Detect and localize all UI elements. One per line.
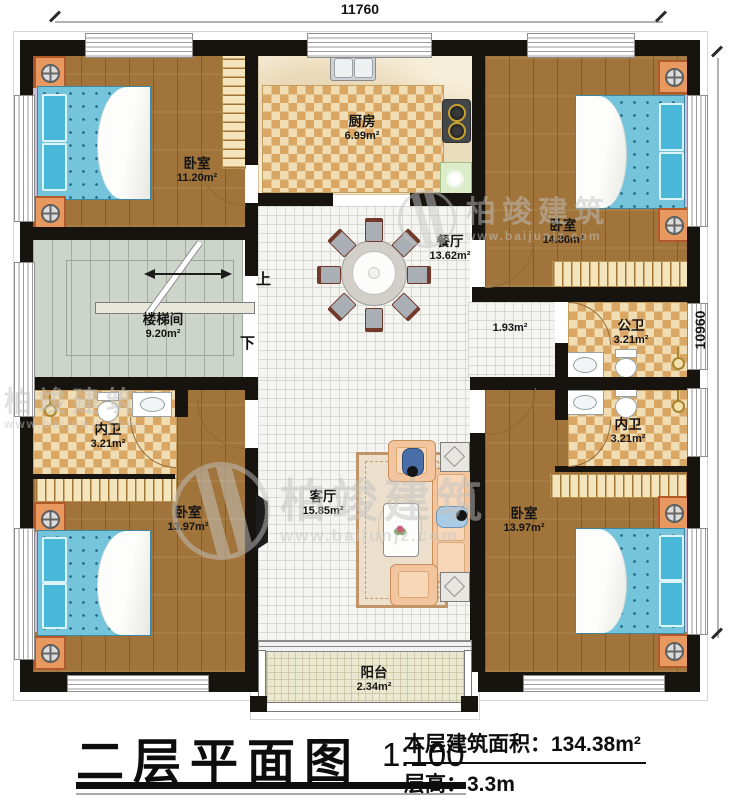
wall [20, 377, 258, 390]
wall [245, 390, 258, 400]
nightstand [658, 496, 690, 530]
floor-height-value: 3.3m [467, 773, 515, 796]
stair-up-label: 上 [256, 268, 271, 289]
shower-head-icon [44, 404, 57, 417]
wall [470, 433, 485, 672]
stair-direction-line [155, 273, 223, 275]
room-name: 楼梯间 [143, 312, 184, 328]
window [14, 95, 35, 222]
room-label-bedroom-br: 卧室 13.97m² [504, 506, 545, 535]
floor-area-label: 本层建筑面积： [404, 733, 551, 756]
stair-arrow-icon [221, 269, 232, 279]
bathroom-sink [566, 352, 604, 378]
toilet-bowl [615, 358, 637, 378]
toilet [94, 392, 120, 422]
room-name: 阳台 [357, 665, 392, 681]
wall [250, 696, 267, 712]
window [687, 528, 708, 635]
room-name: 内卫 [91, 422, 126, 438]
room-label-stairwell: 楼梯间 9.20m² [143, 312, 184, 341]
bed-sheet [576, 529, 627, 633]
pillow [659, 535, 684, 581]
sink-basin [140, 397, 165, 412]
bed [575, 528, 685, 634]
wall [245, 40, 258, 165]
room-area: 11.20m² [177, 172, 217, 185]
room-label-bath-right: 内卫 3.21m² [611, 417, 646, 446]
wall [410, 193, 472, 206]
coffee-table [383, 503, 419, 557]
room-area: 15.85m² [303, 505, 344, 518]
window [523, 675, 665, 692]
wall [472, 287, 700, 302]
dimension-line-top [55, 21, 663, 23]
room-area: 13.62m² [430, 250, 471, 263]
room-area: 9.20m² [143, 328, 184, 341]
stair-down-label: 下 [240, 332, 255, 353]
toilet [612, 349, 638, 377]
toilet [612, 388, 638, 417]
bed-sheet [576, 96, 627, 208]
pillow [659, 152, 684, 200]
window [527, 33, 635, 58]
side-table [440, 572, 470, 602]
room-area: 13.97m² [504, 522, 545, 535]
lamp-icon [665, 642, 684, 661]
nightstand [34, 636, 66, 670]
window [67, 675, 209, 692]
lamp-icon [41, 510, 60, 529]
floor-height-label: 层高： [404, 773, 467, 796]
wall [472, 40, 485, 205]
window [14, 528, 35, 660]
side-table [440, 442, 470, 472]
sink-basin [334, 58, 353, 78]
wall [258, 193, 333, 206]
room-label-balcony: 阳台 2.34m² [357, 665, 392, 694]
room-label-dining: 餐厅 13.62m² [430, 234, 471, 263]
pillow [659, 103, 684, 151]
side-table-decor [444, 576, 465, 597]
nightstand [34, 56, 66, 90]
lamp-icon [665, 504, 684, 523]
chair [365, 218, 383, 242]
wall [555, 343, 568, 377]
bathroom-sink [566, 390, 604, 415]
toilet-tank [97, 392, 119, 401]
wall [461, 696, 478, 712]
window [14, 262, 35, 417]
sofa-cushion [398, 571, 429, 598]
wardrobe [552, 261, 689, 287]
wall [472, 205, 485, 240]
sink-basin [354, 58, 373, 78]
room-name: 公卫 [614, 318, 649, 334]
window [687, 95, 708, 227]
person-head [456, 510, 467, 521]
room-label-bedroom-tr: 卧室 14.86m² [543, 218, 584, 247]
wall [20, 227, 258, 240]
burner-icon [448, 104, 466, 122]
bathroom-sink [132, 392, 172, 417]
room-label-bedroom-bl: 卧室 13.97m² [168, 505, 209, 534]
room-label-living: 客厅 15.85m² [303, 489, 344, 518]
dimension-right: 10960 [692, 295, 708, 365]
room-name: 卧室 [168, 505, 209, 521]
side-table-decor [444, 446, 465, 467]
floor-plan-page: 11760 10960 [0, 0, 750, 799]
person-head [407, 466, 418, 477]
burner-icon [448, 122, 466, 140]
balcony-door-track [258, 640, 472, 652]
pillow [659, 581, 684, 627]
room-area: 3.21m² [91, 438, 126, 451]
floor-area-value: 134.38m² [551, 733, 641, 756]
room-name: 客厅 [303, 489, 344, 505]
toilet-bowl [615, 397, 637, 418]
room-label-bedroom-tl: 卧室 11.20m² [177, 156, 217, 185]
floor-hallway [468, 302, 555, 377]
room-area: 3.21m² [611, 433, 646, 446]
room-area: 13.97m² [168, 521, 209, 534]
balcony-wall [258, 702, 472, 712]
sink-basin [573, 357, 597, 373]
kitchen-sink [330, 54, 376, 81]
window [307, 33, 432, 58]
bed [37, 530, 151, 636]
room-label-kitchen: 厨房 6.99m² [345, 114, 380, 143]
chair [365, 308, 383, 332]
room-label-bath-left: 内卫 3.21m² [91, 422, 126, 451]
floor-area-info: 本层建筑面积：134.38m² [404, 728, 641, 758]
tv [256, 494, 268, 550]
stove [442, 99, 471, 143]
room-label-hallway: 1.93m² [493, 322, 528, 335]
nightstand [658, 60, 690, 94]
room-name: 卧室 [543, 218, 584, 234]
lamp-icon [665, 68, 684, 87]
lamp-icon [41, 644, 60, 663]
room-name: 内卫 [611, 417, 646, 433]
wardrobe [550, 474, 689, 498]
pillow [42, 537, 67, 583]
table-decor [392, 522, 408, 538]
bed-sheet [97, 531, 150, 635]
shower-head-icon [672, 357, 685, 370]
dimension-top: 11760 [295, 1, 425, 17]
chair [407, 266, 431, 284]
wall [555, 390, 568, 420]
wall [555, 466, 687, 472]
sofa-cushion [437, 474, 465, 507]
room-name: 餐厅 [430, 234, 471, 250]
toilet-tank [615, 349, 637, 358]
pillow [42, 94, 67, 142]
wall [33, 474, 175, 479]
room-area: 14.86m² [543, 234, 584, 247]
floor-height-info: 层高：3.3m [404, 768, 515, 798]
stair-arrow-icon [144, 269, 155, 279]
sink-basin [573, 395, 597, 410]
dimension-line-right [717, 58, 719, 638]
nightstand [658, 634, 690, 668]
dimension-tick [711, 45, 723, 57]
lamp-icon [665, 216, 684, 235]
room-area: 3.21m² [614, 334, 649, 347]
bed-sheet [97, 87, 150, 199]
nightstand [658, 208, 690, 242]
window [687, 388, 708, 457]
room-area: 2.34m² [357, 681, 392, 694]
room-area: 6.99m² [345, 130, 380, 143]
room-name: 厨房 [345, 114, 380, 130]
wall [175, 390, 188, 417]
room-area: 1.93m² [493, 322, 528, 335]
chair [317, 266, 341, 284]
room-label-bath-public: 公卫 3.21m² [614, 318, 649, 347]
wall [245, 448, 258, 672]
bed [575, 95, 685, 209]
dining-table-center [368, 267, 380, 279]
armchair [390, 564, 438, 606]
wardrobe [35, 478, 177, 502]
cabinet-sheen [446, 170, 464, 188]
window [85, 33, 193, 58]
nightstand [34, 196, 66, 230]
pillow [42, 583, 67, 629]
room-name: 卧室 [177, 156, 217, 172]
toilet-bowl [97, 401, 119, 422]
pillow [42, 143, 67, 191]
bed [37, 86, 151, 200]
sofa-cushion [437, 542, 465, 575]
lamp-icon [41, 204, 60, 223]
wardrobe [222, 55, 246, 169]
shower-head-icon [672, 400, 685, 413]
lamp-icon [41, 64, 60, 83]
info-divider [404, 762, 646, 764]
room-name: 卧室 [504, 506, 545, 522]
